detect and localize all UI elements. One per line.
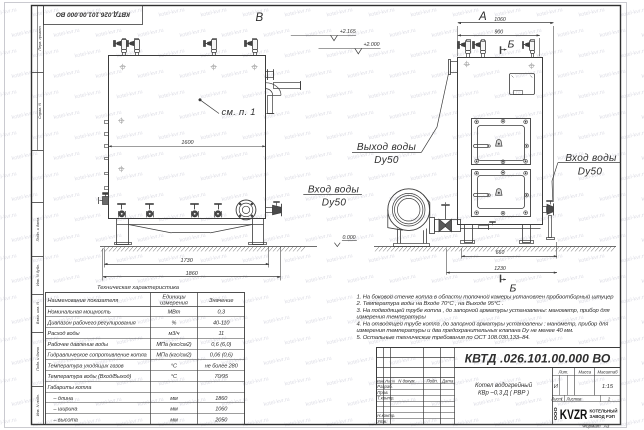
svg-text:Масштаб: Масштаб — [597, 369, 618, 374]
svg-text:kotel-kvr.ru: kotel-kvr.ru — [200, 7, 227, 18]
svg-text:Температура воды (Вход/Выход): Температура воды (Вход/Выход) — [48, 374, 132, 380]
svg-text:kotel-kvr.ru: kotel-kvr.ru — [326, 7, 353, 18]
svg-text:Инв. N дубл.: Инв. N дубл. — [36, 264, 40, 286]
svg-text:kotel-kvr.ru: kotel-kvr.ru — [305, 69, 332, 80]
svg-text:КВТД .026.101.00.000 ВО: КВТД .026.101.00.000 ВО — [465, 352, 611, 366]
svg-text:kotel-kvr.ru: kotel-kvr.ru — [431, 233, 458, 244]
svg-text:kotel-kvr.ru: kotel-kvr.ru — [242, 417, 269, 428]
svg-text:kotel-kvr.ru: kotel-kvr.ru — [11, 28, 38, 39]
svg-text:kotel-kvr.ru: kotel-kvr.ru — [305, 356, 332, 367]
svg-text:kotel-kvr.ru: kotel-kvr.ru — [599, 233, 626, 244]
svg-text:Значение: Значение — [209, 298, 233, 304]
svg-text:Формат: Формат — [582, 424, 600, 429]
svg-text:Выход воды: Выход воды — [357, 142, 417, 153]
svg-text:kotel-kvr.ru: kotel-kvr.ru — [221, 233, 248, 244]
svg-text:kotel-kvr.ru: kotel-kvr.ru — [326, 417, 353, 428]
svg-text:Габариты котла: Габариты котла — [48, 385, 92, 391]
svg-text:МВт: МВт — [168, 310, 181, 316]
svg-text:kotel-kvr.ru: kotel-kvr.ru — [179, 151, 206, 162]
svg-text:Подп. и дата: Подп. и дата — [36, 218, 40, 242]
svg-text:kotel-kvr.ru: kotel-kvr.ru — [515, 28, 542, 39]
svg-text:1730: 1730 — [181, 258, 194, 264]
svg-text:kotel-kvr.ru: kotel-kvr.ru — [284, 89, 311, 100]
svg-text:kotel-kvr.ru: kotel-kvr.ru — [53, 233, 80, 244]
svg-text:1: 1 — [561, 397, 563, 402]
svg-text:kotel-kvr.ru: kotel-kvr.ru — [137, 274, 164, 285]
svg-text:kotel-kvr.ru: kotel-kvr.ru — [620, 48, 644, 59]
svg-text:kotel-kvr.ru: kotel-kvr.ru — [515, 397, 542, 408]
svg-text:kotel-kvr.ru: kotel-kvr.ru — [263, 28, 290, 39]
svg-text:КВр –0,3 Д ( РВР ): КВр –0,3 Д ( РВР ) — [478, 391, 529, 397]
svg-text:2050: 2050 — [214, 417, 228, 423]
svg-text:kotel-kvr.ru: kotel-kvr.ru — [116, 335, 143, 346]
svg-text:kotel-kvr.ru: kotel-kvr.ru — [326, 376, 353, 387]
svg-text:kotel-kvr.ru: kotel-kvr.ru — [515, 192, 542, 203]
svg-text:kotel-kvr.ru: kotel-kvr.ru — [0, 335, 17, 346]
svg-text:kotel-kvr.ru: kotel-kvr.ru — [326, 294, 353, 305]
svg-text:kotel-kvr.ru: kotel-kvr.ru — [326, 48, 353, 59]
svg-text:KVZR: KVZR — [560, 407, 588, 422]
svg-text:kotel-kvr.ru: kotel-kvr.ru — [431, 69, 458, 80]
svg-text:kotel-kvr.ru: kotel-kvr.ru — [326, 335, 353, 346]
svg-text:kotel-kvr.ru: kotel-kvr.ru — [74, 171, 101, 182]
svg-text:Рабочее давление воды: Рабочее давление воды — [48, 342, 109, 348]
svg-text:kotel-kvr.ru: kotel-kvr.ru — [557, 110, 584, 121]
svg-text:Б: Б — [508, 39, 515, 51]
svg-text:kotel-kvr.ru: kotel-kvr.ru — [305, 110, 332, 121]
svg-text:Пров.: Пров. — [377, 390, 388, 395]
svg-text:kotel-kvr.ru: kotel-kvr.ru — [452, 130, 479, 141]
svg-text:kotel-kvr.ru: kotel-kvr.ru — [305, 151, 332, 162]
svg-text:N докум.: N докум. — [398, 378, 415, 383]
svg-text:kotel-kvr.ru: kotel-kvr.ru — [137, 28, 164, 39]
svg-text:kotel-kvr.ru: kotel-kvr.ru — [32, 48, 59, 59]
svg-text:kotel-kvr.ru: kotel-kvr.ru — [452, 89, 479, 100]
svg-text:kotel-kvr.ru: kotel-kvr.ru — [284, 48, 311, 59]
svg-text:КОТЕЛЬНЫЙ: КОТЕЛЬНЫЙ — [590, 409, 618, 414]
svg-text:kotel-kvr.ru: kotel-kvr.ru — [536, 376, 563, 387]
svg-text:kotel-kvr.ru: kotel-kvr.ru — [284, 294, 311, 305]
svg-text:kotel-kvr.ru: kotel-kvr.ru — [410, 171, 437, 182]
svg-text:И: И — [554, 384, 559, 390]
svg-text:kotel-kvr.ru: kotel-kvr.ru — [200, 171, 227, 182]
svg-text:kotel-kvr.ru: kotel-kvr.ru — [368, 130, 395, 141]
svg-text:Расход воды: Расход воды — [48, 331, 80, 337]
svg-text:kotel-kvr.ru: kotel-kvr.ru — [32, 130, 59, 141]
svg-text:3. На подводящей трубе котла: 3. На подводящей трубе котла , до запорн… — [357, 307, 611, 314]
svg-text:Техническая характеристика: Техническая характеристика — [97, 285, 180, 291]
svg-text:kotel-kvr.ru: kotel-kvr.ru — [620, 253, 644, 264]
svg-text:kotel-kvr.ru: kotel-kvr.ru — [578, 212, 605, 223]
svg-text:kotel-kvr.ru: kotel-kvr.ru — [452, 171, 479, 182]
svg-text:kotel-kvr.ru: kotel-kvr.ru — [620, 130, 644, 141]
svg-text:kotel-kvr.ru: kotel-kvr.ru — [473, 397, 500, 408]
svg-text:kotel-kvr.ru: kotel-kvr.ru — [284, 7, 311, 18]
svg-text:kotel-kvr.ru: kotel-kvr.ru — [158, 48, 185, 59]
svg-text:0,06 (0,6): 0,06 (0,6) — [210, 353, 233, 359]
svg-text:измерения температуры: измерения температуры — [357, 315, 427, 321]
svg-text:kotel-kvr.ru: kotel-kvr.ru — [11, 274, 38, 285]
svg-text:kotel-kvr.ru: kotel-kvr.ru — [620, 89, 644, 100]
svg-text:kotel-kvr.ru: kotel-kvr.ru — [53, 69, 80, 80]
svg-text:Листов: Листов — [566, 397, 583, 402]
svg-text:МПа (кгс/см2): МПа (кгс/см2) — [156, 353, 191, 359]
svg-text:%: % — [172, 320, 177, 326]
svg-text:Перв. примен.: Перв. примен. — [38, 25, 42, 50]
svg-text:Разраб.: Разраб. — [377, 384, 393, 389]
svg-text:kotel-kvr.ru: kotel-kvr.ru — [536, 7, 563, 18]
svg-text:40-110: 40-110 — [213, 320, 230, 326]
svg-text:kotel-kvr.ru: kotel-kvr.ru — [95, 28, 122, 39]
svg-text:kotel-kvr.ru: kotel-kvr.ru — [599, 69, 626, 80]
svg-text:измерения температуры и два пр: измерения температуры и два предохраните… — [357, 328, 574, 334]
svg-text:kotel-kvr.ru: kotel-kvr.ru — [473, 274, 500, 285]
svg-text:kotel-kvr.ru: kotel-kvr.ru — [0, 130, 17, 141]
svg-text:kotel-kvr.ru: kotel-kvr.ru — [431, 274, 458, 285]
svg-text:Лит.: Лит. — [557, 369, 568, 374]
svg-text:kotel-kvr.ru: kotel-kvr.ru — [536, 89, 563, 100]
svg-text:kotel-kvr.ru: kotel-kvr.ru — [116, 253, 143, 264]
svg-text:kotel-kvr.ru: kotel-kvr.ru — [284, 335, 311, 346]
svg-text:Котел водогрейный: Котел водогрейный — [475, 382, 533, 389]
svg-text:kotel-kvr.ru: kotel-kvr.ru — [11, 315, 38, 326]
svg-text:kotel-kvr.ru: kotel-kvr.ru — [368, 7, 395, 18]
svg-text:kotel-kvr.ru: kotel-kvr.ru — [11, 192, 38, 203]
svg-text:kotel-kvr.ru: kotel-kvr.ru — [200, 89, 227, 100]
svg-text:kotel-kvr.ru: kotel-kvr.ru — [599, 28, 626, 39]
svg-text:Наименование показателя: Наименование показателя — [48, 298, 119, 304]
svg-text:Номинальная мощность: Номинальная мощность — [48, 310, 111, 316]
svg-text:kotel-kvr.ru: kotel-kvr.ru — [74, 417, 101, 428]
svg-text:kotel-kvr.ru: kotel-kvr.ru — [620, 335, 644, 346]
svg-text:kotel-kvr.ru: kotel-kvr.ru — [347, 274, 374, 285]
svg-text:+2.000: +2.000 — [364, 42, 380, 48]
svg-text:мм: мм — [170, 407, 178, 413]
svg-text:kotel-kvr.ru: kotel-kvr.ru — [221, 28, 248, 39]
svg-text:– ширина: – ширина — [48, 407, 78, 413]
svg-text:kotel-kvr.ru: kotel-kvr.ru — [0, 253, 17, 264]
svg-text:kotel-kvr.ru: kotel-kvr.ru — [95, 274, 122, 285]
svg-text:kotel-kvr.ru: kotel-kvr.ru — [389, 28, 416, 39]
svg-text:5. Остальные технические треб: 5. Остальные технические требования по О… — [357, 335, 530, 341]
svg-text:kotel-kvr.ru: kotel-kvr.ru — [305, 233, 332, 244]
svg-text:kotel-kvr.ru: kotel-kvr.ru — [53, 192, 80, 203]
svg-text:kotel-kvr.ru: kotel-kvr.ru — [32, 89, 59, 100]
svg-text:kotel-kvr.ru: kotel-kvr.ru — [74, 89, 101, 100]
svg-text:kotel-kvr.ru: kotel-kvr.ru — [74, 212, 101, 223]
svg-text:1600: 1600 — [181, 140, 194, 146]
svg-text:kotel-kvr.ru: kotel-kvr.ru — [410, 48, 437, 59]
svg-text:КВТД.026.101.00.000 ВО: КВТД.026.101.00.000 ВО — [56, 10, 130, 17]
svg-text:kotel-kvr.ru: kotel-kvr.ru — [137, 110, 164, 121]
svg-text:kotel-kvr.ru: kotel-kvr.ru — [473, 110, 500, 121]
svg-text:kotel-kvr.ru: kotel-kvr.ru — [410, 130, 437, 141]
svg-text:kotel-kvr.ru: kotel-kvr.ru — [578, 48, 605, 59]
svg-text:kotel-kvr.ru: kotel-kvr.ru — [116, 294, 143, 305]
svg-text:kotel-kvr.ru: kotel-kvr.ru — [494, 417, 521, 428]
svg-text:kotel-kvr.ru: kotel-kvr.ru — [284, 253, 311, 264]
svg-text:kotel-kvr.ru: kotel-kvr.ru — [11, 151, 38, 162]
svg-text:ЗАВОД РЭП: ЗАВОД РЭП — [590, 414, 615, 419]
svg-text:kotel-kvr.ru: kotel-kvr.ru — [452, 7, 479, 18]
svg-text:kotel-kvr.ru: kotel-kvr.ru — [494, 212, 521, 223]
svg-text:kotel-kvr.ru: kotel-kvr.ru — [620, 294, 644, 305]
svg-text:0.000: 0.000 — [343, 235, 356, 241]
svg-text:1230: 1230 — [494, 266, 506, 272]
svg-text:kotel-kvr.ru: kotel-kvr.ru — [620, 417, 644, 428]
svg-text:kotel-kvr.ru: kotel-kvr.ru — [557, 69, 584, 80]
svg-text:kotel-kvr.ru: kotel-kvr.ru — [389, 110, 416, 121]
svg-text:kotel-kvr.ru: kotel-kvr.ru — [179, 69, 206, 80]
svg-text:kotel-kvr.ru: kotel-kvr.ru — [536, 130, 563, 141]
svg-text:1060: 1060 — [215, 407, 228, 413]
svg-text:Б: Б — [510, 283, 517, 295]
svg-text:мм: мм — [170, 417, 178, 423]
svg-text:kotel-kvr.ru: kotel-kvr.ru — [137, 69, 164, 80]
svg-text:kotel-kvr.ru: kotel-kvr.ru — [452, 417, 479, 428]
svg-text:kotel-kvr.ru: kotel-kvr.ru — [473, 69, 500, 80]
svg-text:kotel-kvr.ru: kotel-kvr.ru — [368, 48, 395, 59]
svg-text:kotel-kvr.ru: kotel-kvr.ru — [431, 28, 458, 39]
svg-text:kotel-kvr.ru: kotel-kvr.ru — [599, 397, 626, 408]
svg-text:kotel-kvr.ru: kotel-kvr.ru — [263, 274, 290, 285]
svg-text:4. На отводящей трубе котла ,: 4. На отводящей трубе котла ,до запорной… — [357, 320, 610, 327]
svg-text:kotel-kvr.ru: kotel-kvr.ru — [305, 28, 332, 39]
svg-text:Подп. и дата: Подп. и дата — [36, 347, 40, 371]
svg-text:Взам. инв. N: Взам. инв. N — [36, 302, 40, 324]
svg-text:Dy50: Dy50 — [322, 198, 347, 209]
svg-text:Температура уходящих газов: Температура уходящих газов — [48, 363, 124, 369]
svg-text:kotel-kvr.ru: kotel-kvr.ru — [326, 89, 353, 100]
svg-text:kotel-kvr.ru: kotel-kvr.ru — [431, 110, 458, 121]
svg-text:kotel-kvr.ru: kotel-kvr.ru — [221, 69, 248, 80]
svg-text:kotel-kvr.ru: kotel-kvr.ru — [557, 233, 584, 244]
svg-text:измерения: измерения — [160, 301, 188, 307]
svg-text:Dy50: Dy50 — [374, 155, 399, 166]
svg-text:kotel-kvr.ru: kotel-kvr.ru — [347, 356, 374, 367]
svg-text:kotel-kvr.ru: kotel-kvr.ru — [599, 110, 626, 121]
svg-text:kotel-kvr.ru: kotel-kvr.ru — [116, 130, 143, 141]
svg-text:kotel-kvr.ru: kotel-kvr.ru — [221, 151, 248, 162]
svg-text:kotel-kvr.ru: kotel-kvr.ru — [11, 397, 38, 408]
svg-text:kotel-kvr.ru: kotel-kvr.ru — [242, 376, 269, 387]
svg-text:kotel-kvr.ru: kotel-kvr.ru — [11, 69, 38, 80]
svg-text:kotel-kvr.ru: kotel-kvr.ru — [242, 253, 269, 264]
svg-text:м3/ч: м3/ч — [168, 331, 179, 337]
svg-text:kotel-kvr.ru: kotel-kvr.ru — [74, 253, 101, 264]
svg-text:kotel-kvr.ru: kotel-kvr.ru — [263, 151, 290, 162]
svg-text:kotel-kvr.ru: kotel-kvr.ru — [620, 171, 644, 182]
svg-text:kotel-kvr.ru: kotel-kvr.ru — [0, 212, 17, 223]
svg-text:kotel-kvr.ru: kotel-kvr.ru — [137, 192, 164, 203]
svg-text:0,6 (6,0): 0,6 (6,0) — [211, 342, 231, 348]
svg-text:kotel-kvr.ru: kotel-kvr.ru — [305, 315, 332, 326]
svg-text:kotel-kvr.ru: kotel-kvr.ru — [74, 130, 101, 141]
svg-text:kotel-kvr.ru: kotel-kvr.ru — [347, 397, 374, 408]
svg-text:kotel-kvr.ru: kotel-kvr.ru — [242, 335, 269, 346]
svg-text:11: 11 — [218, 331, 224, 337]
svg-text:kotel-kvr.ru: kotel-kvr.ru — [557, 192, 584, 203]
svg-text:1:15: 1:15 — [602, 384, 614, 390]
svg-text:kotel-kvr.ru: kotel-kvr.ru — [326, 171, 353, 182]
svg-text:kotel-kvr.ru: kotel-kvr.ru — [410, 89, 437, 100]
svg-text:kotel-kvr.ru: kotel-kvr.ru — [620, 7, 644, 18]
svg-text:70/95: 70/95 — [215, 374, 229, 380]
svg-text:kotel-kvr.ru: kotel-kvr.ru — [284, 376, 311, 387]
svg-text:kotel-kvr.ru: kotel-kvr.ru — [137, 233, 164, 244]
svg-text:Единицы: Единицы — [162, 294, 185, 300]
svg-text:Н.контр.: Н.контр. — [377, 413, 395, 418]
svg-text:kotel-kvr.ru: kotel-kvr.ru — [536, 171, 563, 182]
svg-text:kotel-kvr.ru: kotel-kvr.ru — [515, 110, 542, 121]
svg-text:900: 900 — [494, 29, 503, 35]
svg-text:kotel-kvr.ru: kotel-kvr.ru — [599, 274, 626, 285]
svg-text:Dy50: Dy50 — [578, 166, 603, 177]
svg-text:kotel-kvr.ru: kotel-kvr.ru — [11, 110, 38, 121]
svg-text:kotel-kvr.ru: kotel-kvr.ru — [263, 356, 290, 367]
svg-text:0,3: 0,3 — [218, 310, 226, 316]
svg-text:kotel-kvr.ru: kotel-kvr.ru — [200, 130, 227, 141]
svg-text:kotel-kvr.ru: kotel-kvr.ru — [536, 212, 563, 223]
svg-text:1060: 1060 — [494, 17, 506, 23]
svg-text:kotel-kvr.ru: kotel-kvr.ru — [263, 397, 290, 408]
svg-text:kotel-kvr.ru: kotel-kvr.ru — [179, 28, 206, 39]
svg-text:+2.165: +2.165 — [340, 29, 356, 35]
svg-text:Вход воды: Вход воды — [308, 185, 360, 196]
svg-text:kotel-kvr.ru: kotel-kvr.ru — [389, 233, 416, 244]
svg-text:kotel-kvr.ru: kotel-kvr.ru — [473, 233, 500, 244]
svg-text:kotel-kvr.ru: kotel-kvr.ru — [158, 171, 185, 182]
svg-text:kotel-kvr.ru: kotel-kvr.ru — [179, 110, 206, 121]
svg-text:2. Температура воды на Входе: 2. Температура воды на Входе 70°С , на В… — [356, 301, 504, 307]
svg-text:kotel-kvr.ru: kotel-kvr.ru — [32, 253, 59, 264]
svg-text:kotel-kvr.ru: kotel-kvr.ru — [368, 89, 395, 100]
svg-text:kotel-kvr.ru: kotel-kvr.ru — [578, 7, 605, 18]
svg-text:kotel-kvr.ru: kotel-kvr.ru — [53, 274, 80, 285]
svg-text:– высота: – высота — [48, 417, 78, 423]
svg-text:Масса: Масса — [578, 369, 591, 374]
svg-text:kotel-kvr.ru: kotel-kvr.ru — [389, 69, 416, 80]
svg-text:kotel-kvr.ru: kotel-kvr.ru — [0, 417, 17, 428]
svg-text:1860: 1860 — [186, 271, 199, 277]
svg-text:kotel-kvr.ru: kotel-kvr.ru — [620, 212, 644, 223]
svg-text:°С: °С — [171, 374, 178, 380]
svg-text:Гидравлическое сопротивление к: Гидравлическое сопротивление котла — [48, 353, 147, 359]
svg-text:kotel-kvr.ru: kotel-kvr.ru — [410, 253, 437, 264]
svg-text:kotel-kvr.ru: kotel-kvr.ru — [158, 89, 185, 100]
svg-text:kotel-kvr.ru: kotel-kvr.ru — [578, 253, 605, 264]
svg-text:kotel-kvr.ru: kotel-kvr.ru — [200, 212, 227, 223]
svg-text:Справ. N: Справ. N — [38, 103, 42, 119]
svg-text:kotel-kvr.ru: kotel-kvr.ru — [389, 192, 416, 203]
svg-text:не более 280: не более 280 — [205, 363, 239, 369]
svg-text:kotel-kvr.ru: kotel-kvr.ru — [389, 274, 416, 285]
svg-text:kotel-kvr.ru: kotel-kvr.ru — [599, 192, 626, 203]
svg-text:kotel-kvr.ru: kotel-kvr.ru — [116, 89, 143, 100]
svg-text:kotel-kvr.ru: kotel-kvr.ru — [179, 192, 206, 203]
svg-text:kotel-kvr.ru: kotel-kvr.ru — [158, 212, 185, 223]
svg-text:kotel-kvr.ru: kotel-kvr.ru — [53, 151, 80, 162]
svg-text:kotel-kvr.ru: kotel-kvr.ru — [0, 376, 17, 387]
svg-text:мм: мм — [170, 396, 178, 402]
svg-text:kotel-kvr.ru: kotel-kvr.ru — [368, 253, 395, 264]
svg-text:kotel-kvr.ru: kotel-kvr.ru — [0, 171, 17, 182]
svg-text:kotel-kvr.ru: kotel-kvr.ru — [263, 315, 290, 326]
svg-text:kotel-kvr.ru: kotel-kvr.ru — [0, 48, 17, 59]
svg-text:А: А — [478, 11, 487, 23]
svg-text:°С: °С — [171, 363, 178, 369]
svg-text:Диапазон рабочего регулировани: Диапазон рабочего регулирования — [47, 320, 136, 326]
svg-text:kotel-kvr.ru: kotel-kvr.ru — [179, 233, 206, 244]
svg-text:Утв.: Утв. — [377, 419, 387, 424]
svg-text:660: 660 — [496, 250, 505, 256]
svg-text:kotel-kvr.ru: kotel-kvr.ru — [53, 28, 80, 39]
svg-text:kotel-kvr.ru: kotel-kvr.ru — [326, 212, 353, 223]
svg-text:kotel-kvr.ru: kotel-kvr.ru — [347, 110, 374, 121]
svg-text:А3: А3 — [603, 424, 610, 429]
svg-text:Инв. N подл.: Инв. N подл. — [36, 394, 40, 416]
svg-text:kotel-kvr.ru: kotel-kvr.ru — [578, 130, 605, 141]
svg-text:kotel-kvr.ru: kotel-kvr.ru — [200, 253, 227, 264]
svg-text:kotel-kvr.ru: kotel-kvr.ru — [494, 171, 521, 182]
svg-text:kotel-kvr.ru: kotel-kvr.ru — [347, 69, 374, 80]
svg-text:kotel-kvr.ru: kotel-kvr.ru — [452, 253, 479, 264]
svg-text:1860: 1860 — [215, 396, 228, 402]
svg-text:МПа (кгс/см2): МПа (кгс/см2) — [156, 342, 191, 348]
svg-text:kotel-kvr.ru: kotel-kvr.ru — [284, 417, 311, 428]
svg-text:ООО: ООО — [553, 407, 559, 420]
svg-text:kotel-kvr.ru: kotel-kvr.ru — [263, 233, 290, 244]
svg-text:kotel-kvr.ru: kotel-kvr.ru — [410, 7, 437, 18]
svg-text:kotel-kvr.ru: kotel-kvr.ru — [32, 171, 59, 182]
svg-text:kotel-kvr.ru: kotel-kvr.ru — [578, 335, 605, 346]
svg-text:kotel-kvr.ru: kotel-kvr.ru — [305, 397, 332, 408]
svg-text:kotel-kvr.ru: kotel-kvr.ru — [11, 233, 38, 244]
svg-text:Изм.Лист: Изм.Лист — [377, 378, 396, 383]
svg-text:kotel-kvr.ru: kotel-kvr.ru — [326, 253, 353, 264]
svg-text:kotel-kvr.ru: kotel-kvr.ru — [53, 110, 80, 121]
svg-text:kotel-kvr.ru: kotel-kvr.ru — [158, 7, 185, 18]
svg-text:kotel-kvr.ru: kotel-kvr.ru — [578, 89, 605, 100]
svg-text:Т.контр.: Т.контр. — [377, 396, 394, 401]
svg-text:В: В — [256, 12, 264, 24]
svg-text:kotel-kvr.ru: kotel-kvr.ru — [515, 69, 542, 80]
svg-text:kotel-kvr.ru: kotel-kvr.ru — [0, 294, 17, 305]
svg-text:kotel-kvr.ru: kotel-kvr.ru — [557, 28, 584, 39]
svg-text:Подп.: Подп. — [426, 378, 437, 383]
svg-text:kotel-kvr.ru: kotel-kvr.ru — [0, 89, 17, 100]
svg-text:kotel-kvr.ru: kotel-kvr.ru — [0, 7, 17, 18]
svg-text:kotel-kvr.ru: kotel-kvr.ru — [221, 274, 248, 285]
svg-text:kotel-kvr.ru: kotel-kvr.ru — [515, 274, 542, 285]
svg-text:kotel-kvr.ru: kotel-kvr.ru — [620, 376, 644, 387]
svg-text:kotel-kvr.ru: kotel-kvr.ru — [305, 274, 332, 285]
svg-text:Дата: Дата — [441, 378, 454, 383]
svg-text:kotel-kvr.ru: kotel-kvr.ru — [536, 335, 563, 346]
svg-text:kotel-kvr.ru: kotel-kvr.ru — [116, 171, 143, 182]
svg-text:kotel-kvr.ru: kotel-kvr.ru — [284, 171, 311, 182]
svg-text:kotel-kvr.ru: kotel-kvr.ru — [284, 212, 311, 223]
svg-text:kotel-kvr.ru: kotel-kvr.ru — [284, 130, 311, 141]
svg-text:kotel-kvr.ru: kotel-kvr.ru — [326, 130, 353, 141]
svg-text:kotel-kvr.ru: kotel-kvr.ru — [242, 294, 269, 305]
svg-text:kotel-kvr.ru: kotel-kvr.ru — [116, 417, 143, 428]
svg-text:kotel-kvr.ru: kotel-kvr.ru — [536, 253, 563, 264]
svg-text:kotel-kvr.ru: kotel-kvr.ru — [557, 274, 584, 285]
svg-text:см. п. 1: см. п. 1 — [222, 106, 256, 117]
svg-text:kotel-kvr.ru: kotel-kvr.ru — [32, 7, 59, 18]
svg-text:– длина: – длина — [48, 396, 73, 402]
